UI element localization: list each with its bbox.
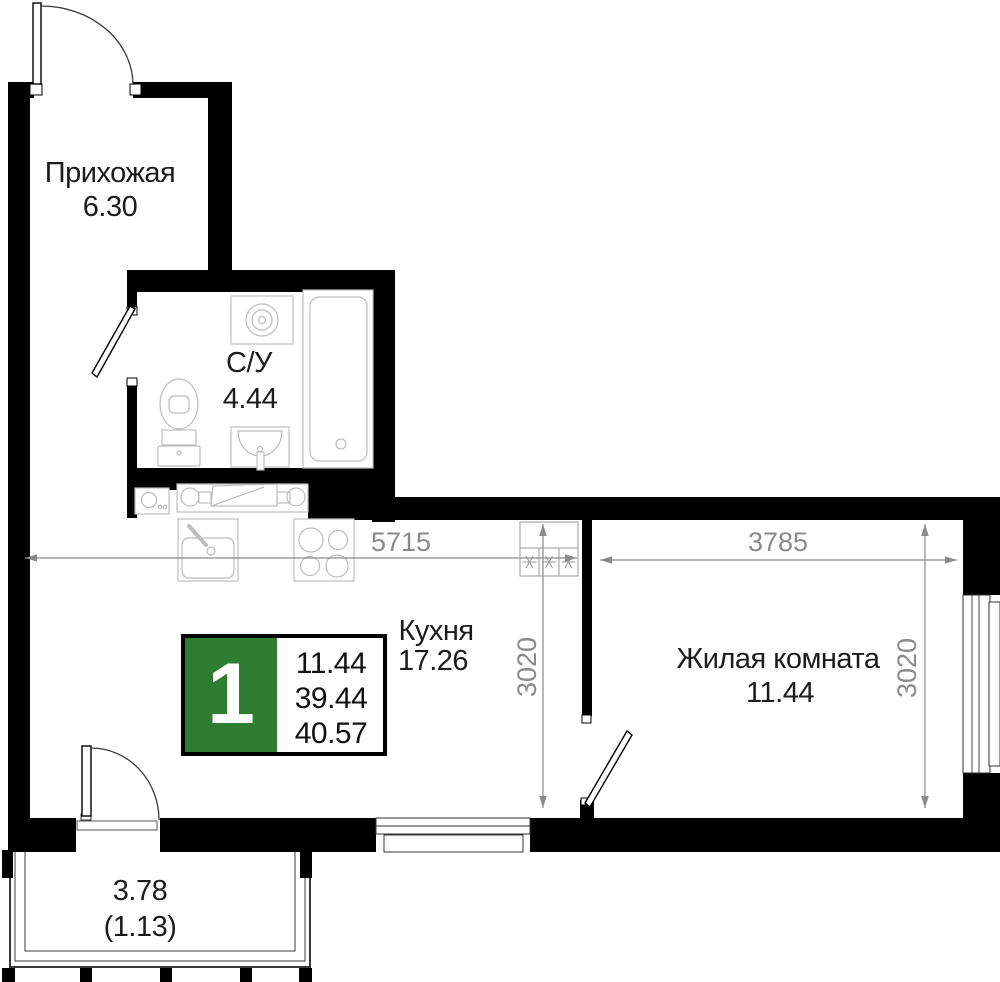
living-room-area: 11.44 [746, 677, 814, 709]
entry-door [30, 3, 141, 95]
bathroom-sink-icon [231, 427, 289, 470]
dimension-kitchen-depth: 3020 [512, 637, 542, 697]
bathroom-door [92, 306, 137, 386]
kitchen-sink-icon [178, 519, 238, 581]
living-room-door-leaf [585, 731, 632, 807]
bathtub-icon [303, 290, 373, 468]
apartment-type-badge: 1 11.44 39.44 40.57 [183, 636, 385, 754]
counter-appliance-icon [135, 488, 169, 514]
kitchen-area: 17.26 [398, 645, 468, 677]
badge-area-no-balcony: 39.44 [295, 682, 368, 715]
kitchen-counter-appliances [135, 484, 308, 514]
balcony-area-reduced: (1.13) [104, 911, 177, 943]
kitchen-fixtures [178, 519, 354, 581]
entry-door-swing-arc [41, 6, 133, 85]
dimension-kitchen-width: 5715 [371, 527, 431, 557]
bathroom-name: С/У [226, 347, 273, 379]
badge-rooms-count: 1 [207, 646, 255, 742]
dimension-living-depth: 3020 [892, 638, 922, 698]
counter-unit-icon [177, 484, 308, 512]
balcony-door [81, 746, 159, 820]
room-label-living-room: Жилая комната 11.44 [677, 643, 881, 709]
toilet-icon [158, 379, 200, 466]
room-label-bathroom: С/У 4.44 [223, 347, 278, 415]
balcony-area: 3.78 [113, 875, 167, 907]
balcony-door-swing-arc [91, 748, 159, 820]
living-room-door [581, 715, 632, 807]
living-room-window [963, 595, 1000, 773]
balcony-door-threshold [77, 821, 157, 830]
bathroom-door-leaf [92, 306, 135, 377]
kitchen-window [376, 818, 530, 852]
room-label-hallway: Прихожая 6.30 [45, 157, 175, 223]
badge-total-area: 40.57 [295, 717, 368, 750]
bathroom-fixtures [158, 290, 373, 470]
living-room-name: Жилая комната [677, 643, 881, 675]
floor-plan-svg: 5715 3785 3020 3020 Прихожая 6.30 С/У 4.… [0, 0, 1000, 982]
hallway-area: 6.30 [83, 191, 137, 223]
room-label-kitchen: Кухня 17.26 [398, 615, 474, 677]
balcony-door-leaf [82, 746, 91, 816]
room-label-balcony: 3.78 (1.13) [104, 875, 177, 943]
hallway-name: Прихожая [45, 157, 175, 189]
vent-shaft [520, 522, 578, 576]
washing-machine-icon [231, 296, 293, 344]
walls [8, 82, 1000, 852]
entry-door-leaf [33, 3, 41, 84]
dimension-living-width: 3785 [748, 527, 808, 557]
bathroom-area: 4.44 [223, 383, 278, 415]
kitchen-name: Кухня [398, 615, 473, 647]
stove-icon [294, 519, 354, 581]
floor-plan: 5715 3785 3020 3020 Прихожая 6.30 С/У 4.… [0, 0, 1000, 982]
badge-living-area: 11.44 [296, 647, 366, 680]
